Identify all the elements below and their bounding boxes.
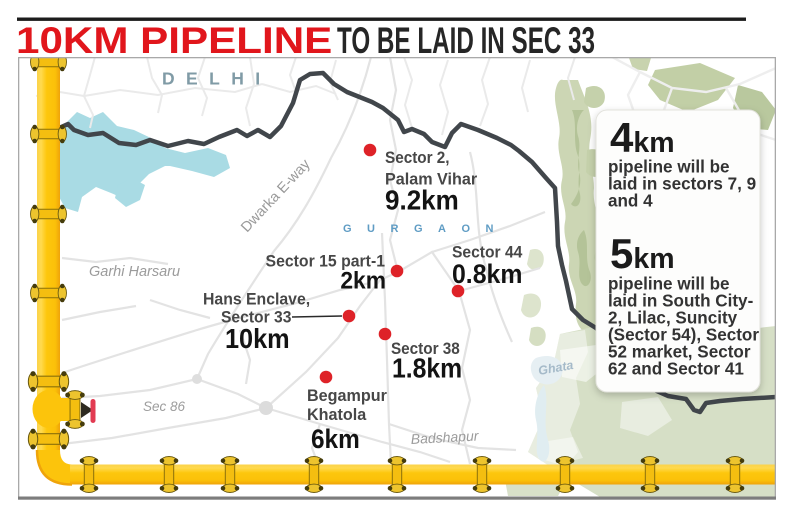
svg-text:9.2km: 9.2km (385, 185, 459, 216)
svg-text:0.8km: 0.8km (452, 260, 522, 289)
svg-text:Hans Enclave,: Hans Enclave, (203, 290, 310, 309)
svg-text:Sec 86: Sec 86 (143, 399, 186, 414)
svg-text:62 and Sector 41: 62 and Sector 41 (608, 358, 744, 379)
svg-text:10KM PIPELINE: 10KM PIPELINE (16, 20, 332, 61)
svg-text:Khatola: Khatola (307, 405, 367, 424)
svg-text:Sector 44: Sector 44 (452, 243, 522, 262)
svg-text:Garhi Harsaru: Garhi Harsaru (89, 264, 180, 280)
svg-text:10km: 10km (225, 323, 290, 354)
svg-text:2km: 2km (340, 267, 386, 294)
svg-text:DELHI: DELHI (162, 69, 272, 89)
svg-text:and 4: and 4 (608, 190, 653, 211)
svg-text:GURGAON: GURGAON (343, 223, 509, 235)
svg-text:Begampur: Begampur (307, 386, 387, 405)
svg-text:6km: 6km (311, 425, 360, 454)
svg-text:TO BE LAID IN SEC 33: TO BE LAID IN SEC 33 (337, 20, 595, 61)
svg-text:1.8km: 1.8km (392, 352, 462, 384)
svg-text:Sector 2,: Sector 2, (385, 148, 450, 167)
